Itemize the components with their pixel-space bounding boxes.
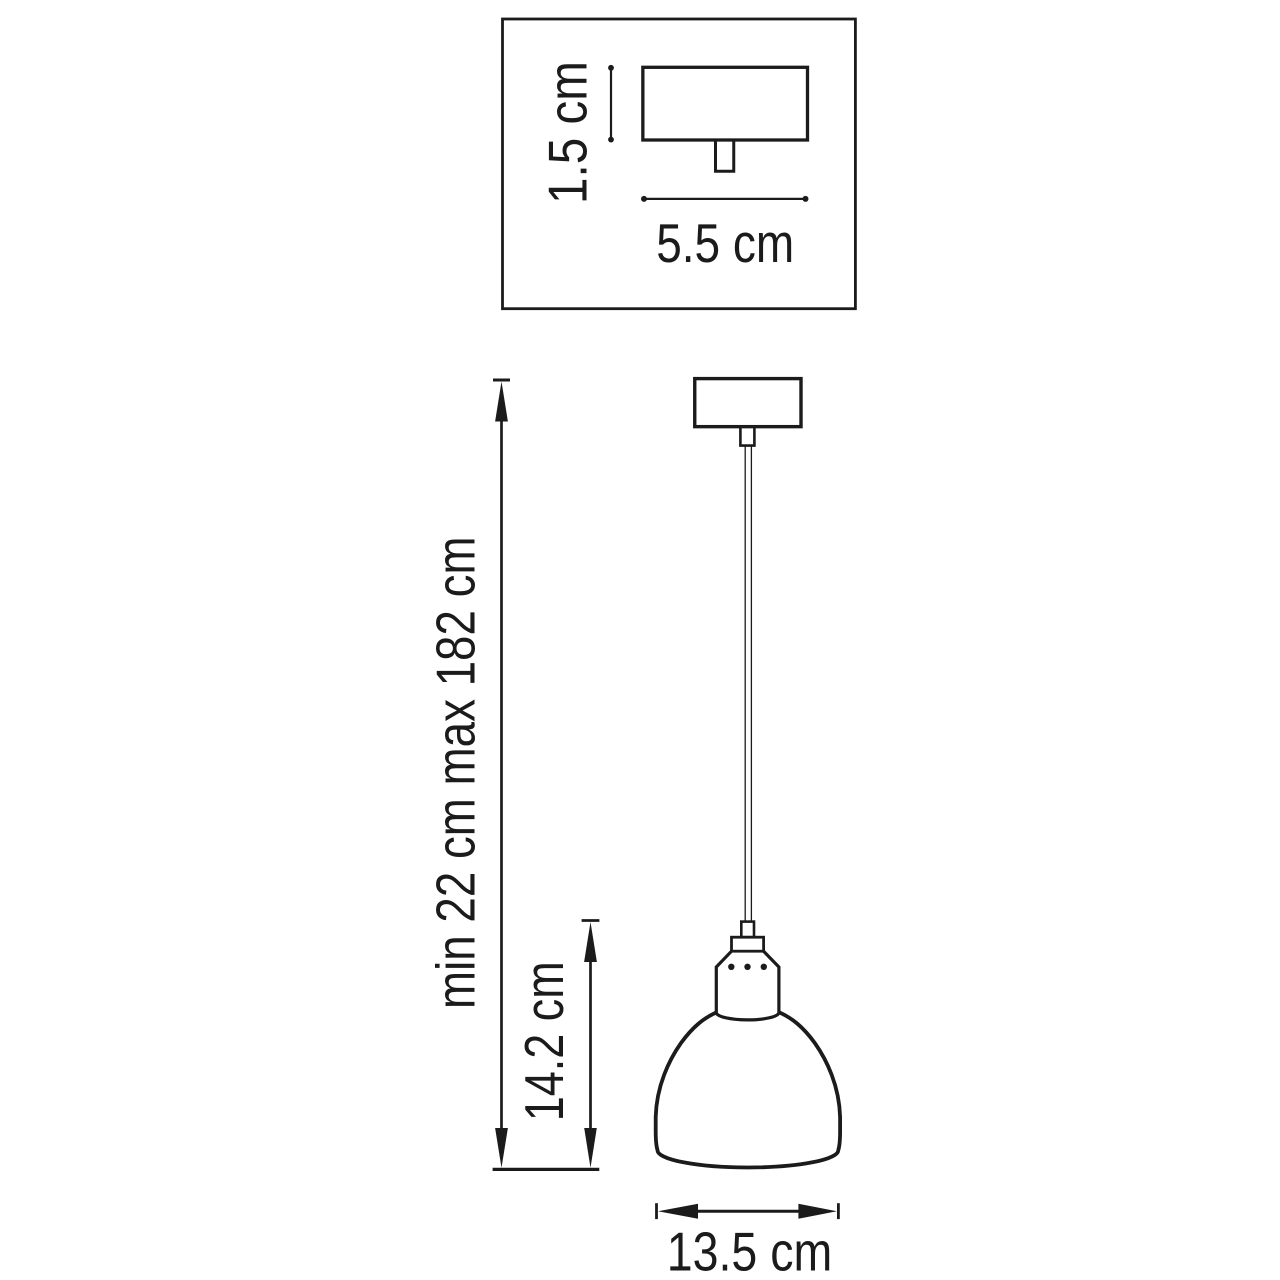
svg-text:min 22 cm max 182 cm: min 22 cm max 182 cm [424,536,486,1009]
svg-text:14.2 cm: 14.2 cm [513,961,575,1121]
svg-text:1.5 cm: 1.5 cm [537,61,599,204]
svg-text:5.5 cm: 5.5 cm [656,212,794,274]
svg-text:13.5 cm: 13.5 cm [667,1221,833,1280]
